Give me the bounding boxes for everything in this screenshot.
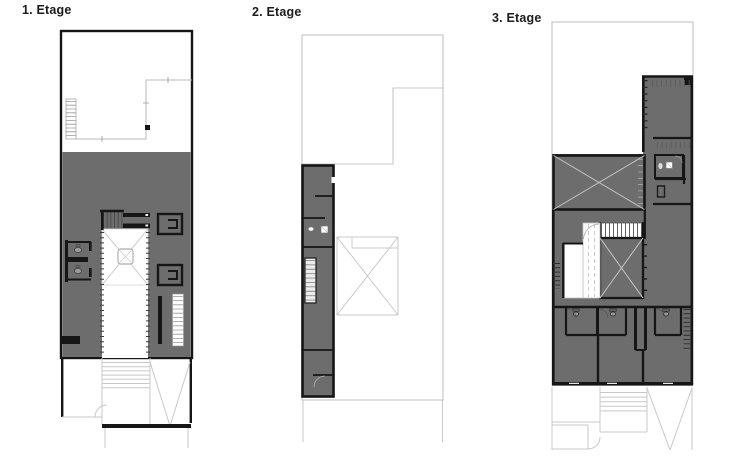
plan-2-void-skylight bbox=[337, 237, 398, 315]
plan-3-drawing bbox=[545, 18, 700, 458]
plan-2-ghost bbox=[303, 400, 443, 442]
plan-1-label: 1. Etage bbox=[22, 3, 72, 17]
plan-2-label: 2. Etage bbox=[252, 5, 302, 19]
plan-2-drawing bbox=[295, 28, 460, 448]
plan-2-stair bbox=[305, 258, 316, 303]
plan-1-entry-ghost bbox=[62, 358, 191, 448]
plan-2-gallery-strip bbox=[303, 166, 336, 397]
plan-3-label: 3. Etage bbox=[492, 11, 542, 25]
plan-1-drawing bbox=[55, 28, 200, 448]
floor-plans-sheet: 1. Etage bbox=[0, 0, 750, 464]
plan-1-courtyard-skylight bbox=[102, 229, 148, 358]
plan-1-garden bbox=[66, 77, 192, 142]
plan-3-entry-ghost bbox=[552, 387, 692, 450]
